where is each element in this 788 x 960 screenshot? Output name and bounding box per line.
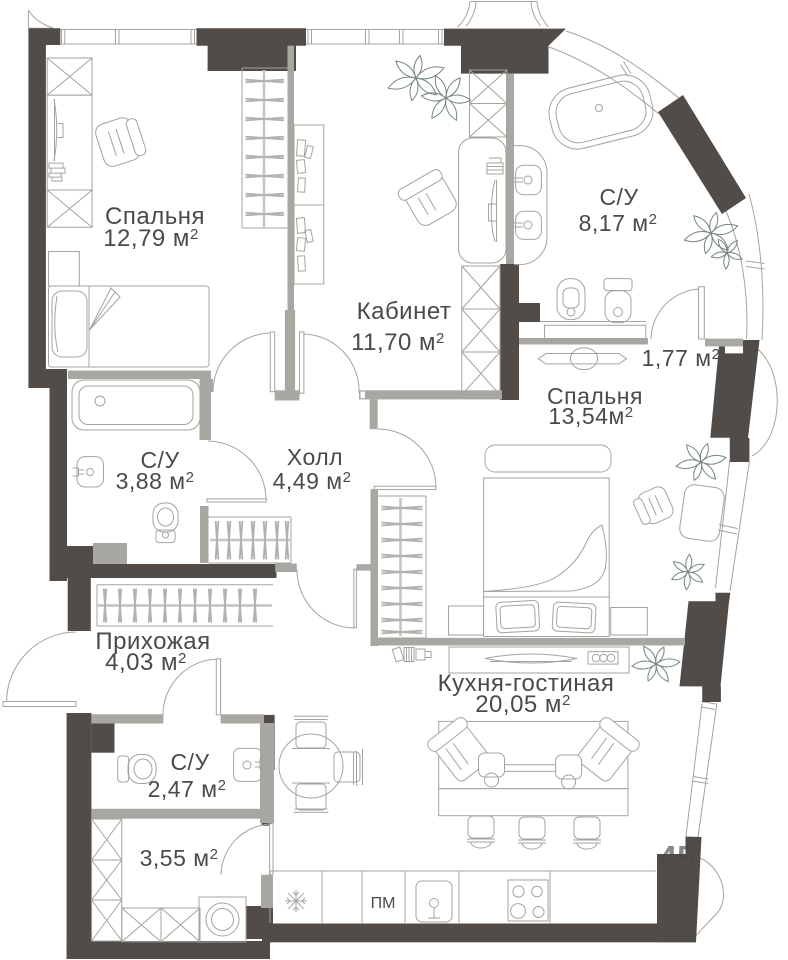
svg-text:С/У: С/У [170, 749, 209, 775]
svg-text:4,49 м2: 4,49 м2 [273, 468, 352, 494]
svg-text:1,77 м2: 1,77 м2 [642, 345, 721, 371]
svg-text:3,55 м2: 3,55 м2 [140, 845, 219, 871]
svg-text:12,79 м2: 12,79 м2 [103, 225, 199, 252]
svg-text:3,88 м2: 3,88 м2 [116, 468, 195, 494]
svg-text:Кабинет: Кабинет [357, 298, 452, 325]
svg-text:8,17 м2: 8,17 м2 [579, 210, 658, 236]
svg-text:45: 45 [659, 839, 696, 876]
svg-text:2,47 м2: 2,47 м2 [148, 776, 227, 802]
svg-text:С/У: С/У [599, 184, 638, 210]
svg-text:4,03 м2: 4,03 м2 [105, 649, 187, 676]
svg-text:20,05 м2: 20,05 м2 [475, 691, 571, 718]
svg-text:11,70 м2: 11,70 м2 [351, 329, 445, 356]
svg-text:ПМ: ПМ [371, 895, 396, 912]
svg-text:Холл: Холл [287, 444, 343, 470]
svg-text:13,54м2: 13,54м2 [548, 403, 633, 429]
